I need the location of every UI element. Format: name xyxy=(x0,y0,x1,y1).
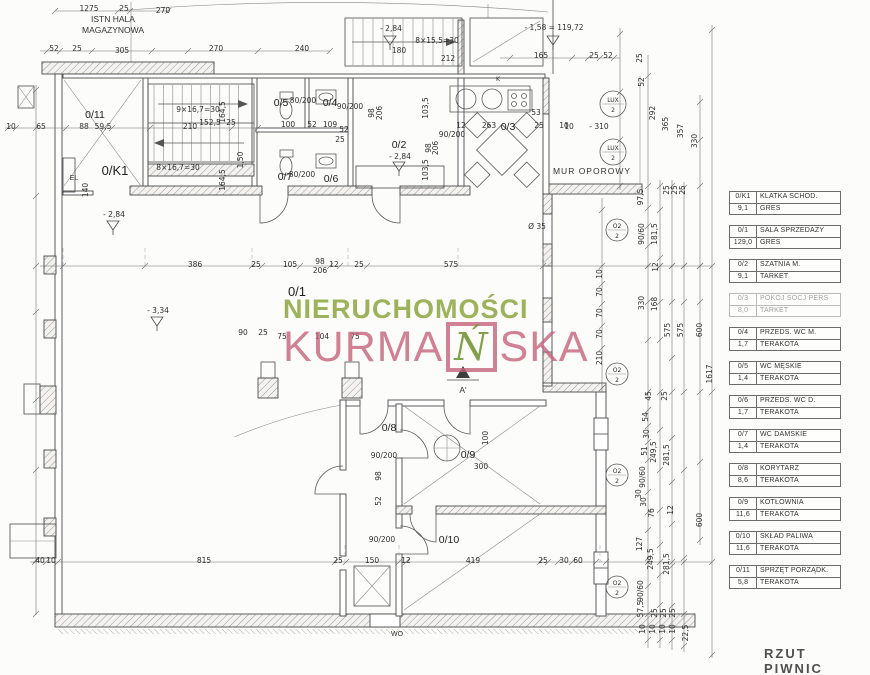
pilasters xyxy=(10,256,56,558)
dim-label: 12 xyxy=(401,556,411,565)
dim-label: 25 xyxy=(333,556,343,565)
dim-label: 88 xyxy=(79,122,89,131)
legend-code: 5,8 xyxy=(730,578,757,589)
legend-code: 0/4 xyxy=(730,328,757,339)
dim-label: 52 xyxy=(49,44,59,53)
section-label: A' xyxy=(459,385,467,395)
dim-label: 25 xyxy=(335,135,345,144)
dim-label: 25 xyxy=(119,4,129,13)
dim-label: 100 xyxy=(481,431,490,446)
legend-name: WC DAMSKIE xyxy=(757,430,807,441)
dim-label: 80/200 xyxy=(289,170,316,179)
dim-label: 10 xyxy=(564,122,574,131)
dim-label: 70 xyxy=(595,308,604,318)
legend-entry: 0/9KOTŁOWNIA11,6TERAKOTA xyxy=(729,497,841,521)
dim-label: 70 xyxy=(595,329,604,339)
dim-label: 10 xyxy=(658,624,667,634)
dim-label: 305 xyxy=(115,46,130,55)
dim-label: 600 xyxy=(695,513,704,528)
legend-code: 11,6 xyxy=(730,510,757,521)
dim-label: 25 xyxy=(251,260,261,269)
dim-label: - 2,84 xyxy=(380,24,402,33)
door-swing xyxy=(372,195,400,223)
dim-label: 815 xyxy=(197,556,212,565)
dim-label: 357 xyxy=(676,124,685,139)
legend-code: 0/7 xyxy=(730,430,757,441)
dim-label: 103,5 xyxy=(421,97,430,119)
legend-name: PRZEDS. WC M. xyxy=(757,328,816,339)
dim-label: 25 xyxy=(538,556,548,565)
dim-label: 330 xyxy=(637,296,646,311)
legend-entry: 0/11SPRZĘT PORZĄDK.5,8TERAKOTA xyxy=(729,565,841,589)
room-label: 0/9 xyxy=(461,449,476,461)
dim-label: 575 xyxy=(663,323,672,338)
dim-label: 80/200 xyxy=(290,96,317,105)
dim-label: 98 xyxy=(374,471,383,481)
dim-label: 98 xyxy=(315,257,325,266)
dim-label: 9×16,7=30 xyxy=(176,105,220,114)
dim-label: 1617 xyxy=(705,364,714,383)
dim-label: 53 xyxy=(531,108,541,117)
dim-label: 419 xyxy=(466,556,481,565)
dim-label: 240 xyxy=(295,44,310,53)
marker-bottom-text: 2 xyxy=(615,233,619,240)
legend-code: 0/2 xyxy=(730,260,757,271)
dim-label: 52 xyxy=(637,77,646,87)
dim-label: 75 xyxy=(277,332,287,341)
dim-label: 165 xyxy=(534,51,549,60)
dim-label: 249,5 xyxy=(646,548,655,570)
chimney-shaft xyxy=(354,566,390,606)
room-label: 0/8 xyxy=(382,422,397,434)
legend-code: 0/5 xyxy=(730,362,757,373)
marker-top-text: LUX xyxy=(607,97,619,104)
dim-label: 25 xyxy=(258,328,268,337)
dim-label: 25 xyxy=(635,53,644,63)
dim-label: 10 xyxy=(638,624,647,634)
dim-label: 12 xyxy=(651,262,660,272)
marker-bottom-text: 2 xyxy=(615,377,619,384)
boiler xyxy=(434,435,460,461)
dim-label: 281,5 xyxy=(662,444,671,466)
bearing-wall xyxy=(63,186,470,195)
dim-label: 45 xyxy=(644,391,653,401)
dim-label: 90/60 xyxy=(637,223,646,245)
legend-entry: 0/1SALA SPRZEDAŻY129,0GRES xyxy=(729,225,841,249)
dim-label: 104 xyxy=(315,332,330,341)
dim-label: 575 xyxy=(676,323,685,338)
legend-code: 9,1 xyxy=(730,204,757,215)
dim-label: 52 xyxy=(603,51,613,60)
dim-label: 25 xyxy=(668,608,677,618)
dim-label: 140 xyxy=(81,183,90,198)
legend-name: SKŁAD PALIWA xyxy=(757,532,813,543)
dim-label: 365 xyxy=(661,117,670,132)
dim-label: 212 xyxy=(441,54,456,63)
room-label: 0/10 xyxy=(439,534,460,546)
dim-label: 25 xyxy=(650,608,659,618)
legend-entry: 0/10SKŁAD PALIWA11,6TERAKOTA xyxy=(729,531,841,555)
dim-label: 90/200 xyxy=(337,102,364,111)
dim-label: 54 xyxy=(641,412,650,422)
door-swing xyxy=(400,430,428,458)
dim-label: 206 xyxy=(313,266,328,275)
dim-label: - 2,84 xyxy=(103,210,125,219)
marker-bottom-text: 2 xyxy=(615,478,619,485)
marker-bottom-text: 2 xyxy=(615,590,619,597)
dim-label: 263 xyxy=(482,121,497,130)
dim-label: 109 xyxy=(323,120,338,129)
dim-label: 181,5 xyxy=(650,223,659,245)
dim-label: 25 xyxy=(72,44,82,53)
dim-label: 70 xyxy=(595,287,604,297)
dim-label: 249,5 xyxy=(649,441,658,463)
legend-entry: 0/2SZATNIA M.9,1TARKET xyxy=(729,259,841,283)
legend-name: TERAKOTA xyxy=(757,578,799,589)
dim-label: 59,5 xyxy=(95,122,112,131)
legend-entry: 0/5WC MĘSKIE1,4TERAKOTA xyxy=(729,361,841,385)
legend-entry: 0/6PRZEDS. WC D.1,7TERAKOTA xyxy=(729,395,841,419)
legend-code: 0/K1 xyxy=(730,192,757,203)
coal-chute-label: WO xyxy=(391,631,404,638)
circle-marker: O22 xyxy=(606,576,628,598)
dim-label: 300 xyxy=(474,462,489,471)
legend-code: 8,0 xyxy=(730,306,757,317)
legend-name: GRES xyxy=(757,204,781,215)
legend-entry: 0/7WC DAMSKIE1,4TERAKOTA xyxy=(729,429,841,453)
legend-code: 0/6 xyxy=(730,396,757,407)
dim-label: - 3,34 xyxy=(147,306,169,315)
room-label: 0/11 xyxy=(85,109,105,121)
dim-label: 575 xyxy=(444,260,459,269)
dim-label: 164,5 xyxy=(218,169,227,191)
marker-bottom-text: 2 xyxy=(611,107,615,114)
dim-label: 90/200 xyxy=(371,451,398,460)
dim-label: 1275 xyxy=(79,4,98,13)
dim-label: 281,5 xyxy=(662,553,671,575)
dim-label: 25 xyxy=(589,51,599,60)
dim-label: 164,5 xyxy=(218,101,227,123)
dim-label: 150 xyxy=(365,556,380,565)
dim-label: 30 xyxy=(639,497,648,507)
legend-code: 1,4 xyxy=(730,374,757,385)
legend-name: TERAKOTA xyxy=(757,374,799,385)
dim-label: Ø 35 xyxy=(528,222,546,231)
circle-marker: LUX2 xyxy=(600,91,626,117)
legend-name: KORYTARZ xyxy=(757,464,799,475)
legend-name: KLATKA SCHOD. xyxy=(757,192,818,203)
dim-label: 90/200 xyxy=(369,535,396,544)
legend-entry: 0/K1KLATKA SCHOD.9,1GRES xyxy=(729,191,841,215)
dim-label: 10 xyxy=(46,556,56,565)
room-label: 0/3 xyxy=(501,121,516,133)
dim-label: 25 xyxy=(354,260,364,269)
dim-label: 10 xyxy=(648,624,657,634)
dim-label: 12 xyxy=(666,505,675,515)
legend-name: TERAKOTA xyxy=(757,340,799,351)
legend-code: 0/8 xyxy=(730,464,757,475)
legend-name: GRES xyxy=(757,238,781,249)
marker-top-text: LUX xyxy=(607,145,619,152)
scan-artifact-line xyxy=(128,2,548,12)
legend-code: 0/10 xyxy=(730,532,757,543)
hall-label-line1: ISTN HALA xyxy=(91,14,135,24)
door-swing xyxy=(315,466,343,494)
dim-label: 12 xyxy=(329,260,339,269)
dim-label: 90/60 xyxy=(636,580,645,602)
room-label: 0/2 xyxy=(392,139,407,151)
legend-name: TERAKOTA xyxy=(757,408,799,419)
dim-label: 206 xyxy=(431,141,440,156)
dim-label: 100 xyxy=(281,120,296,129)
room-label: 0/6 xyxy=(324,173,339,185)
dim-label: 8×15,5=30 xyxy=(415,36,459,45)
room-label: 0/1 xyxy=(288,284,306,299)
circle-marker: O22 xyxy=(606,363,628,385)
legend-code: 129,0 xyxy=(730,238,757,249)
legend-code: 1,4 xyxy=(730,442,757,453)
room-legend: 0/K1KLATKA SCHOD.9,1GRES0/1SALA SPRZEDAŻ… xyxy=(729,191,843,599)
dim-label: 127 xyxy=(635,537,644,552)
door-swing xyxy=(400,526,428,554)
legend-code: 0/3 xyxy=(730,294,757,305)
dim-label: 25 xyxy=(659,608,668,618)
dim-label: 60 xyxy=(573,556,583,565)
legend-name: SZATNIA M. xyxy=(757,260,800,271)
dim-label: 25 xyxy=(534,121,544,130)
circle-marker: O22 xyxy=(606,464,628,486)
elevator-label: EL xyxy=(70,175,79,182)
floor-plan-page: A' ISTN HALA MAGAZYNOWA MUR OPOROWY EL W… xyxy=(0,0,870,675)
dim-label: 30 xyxy=(642,429,651,439)
drawing-title: RZUT PIWNIC xyxy=(764,646,870,675)
door-swing xyxy=(260,195,288,223)
dim-label: 25 xyxy=(226,118,236,127)
legend-entry: 0/4PRZEDS. WC M.1,7TERAKOTA xyxy=(729,327,841,351)
dim-label: 330 xyxy=(690,134,699,149)
dim-label: 292 xyxy=(648,106,657,121)
legend-code: 8,6 xyxy=(730,476,757,487)
dim-label: 25 xyxy=(678,185,687,195)
legend-code: 0/9 xyxy=(730,498,757,509)
section-marker: A' xyxy=(447,366,479,395)
dim-label: 168 xyxy=(650,297,659,312)
dim-label: 30 xyxy=(559,556,569,565)
marker-top-text: O2 xyxy=(613,367,622,374)
dim-label: 10 xyxy=(668,624,677,634)
dim-label: 386 xyxy=(188,260,203,269)
legend-code: 1,7 xyxy=(730,408,757,419)
legend-name: SALA SPRZEDAŻY xyxy=(757,226,824,237)
dim-label: 105 xyxy=(283,260,298,269)
legend-code: 0/11 xyxy=(730,566,757,577)
door-swing xyxy=(410,514,436,542)
dim-label: 51 xyxy=(640,446,649,456)
dim-label: 22,5 xyxy=(681,624,690,641)
dim-label: 1,50 xyxy=(236,151,245,168)
dim-label: 65 xyxy=(36,122,46,131)
dim-label: 103,5 xyxy=(421,159,430,181)
dim-label: - 1,58 = 119,72 xyxy=(524,23,583,32)
dim-label: 90/200 xyxy=(439,130,466,139)
dim-label: 52 xyxy=(339,125,349,134)
legend-name: SPRZĘT PORZĄDK. xyxy=(757,566,828,577)
legend-name: PRZEDS. WC D. xyxy=(757,396,816,407)
dim-label: 210 xyxy=(183,122,198,131)
dim-label: 600 xyxy=(695,323,704,338)
dim-label: 97,5 xyxy=(636,188,645,205)
dim-label: 75 xyxy=(350,332,360,341)
legend-code: 0/1 xyxy=(730,226,757,237)
legend-code: 9,1 xyxy=(730,272,757,283)
dim-label: - 310 xyxy=(589,122,609,131)
room-label: 0/5 xyxy=(274,97,289,109)
dim-label: - 2,84 xyxy=(389,152,411,161)
legend-name: POKÓJ SOCJ PERS xyxy=(757,294,828,305)
marker-top-text: O2 xyxy=(613,223,622,230)
dim-label: 8×16,7=30 xyxy=(156,163,200,172)
boiler-block-walls xyxy=(340,400,606,616)
circle-marker: LUX2 xyxy=(600,139,626,165)
dim-label: 12 xyxy=(456,121,466,130)
dim-label: 10 xyxy=(595,269,604,279)
legend-name: KOTŁOWNIA xyxy=(757,498,804,509)
marker-bottom-text: 2 xyxy=(611,155,615,162)
legend-name: TERAKOTA xyxy=(757,510,799,521)
marker-top-text: O2 xyxy=(613,468,622,475)
retaining-wall-label: MUR OPOROWY xyxy=(553,166,631,176)
dim-label: 52 xyxy=(307,120,317,129)
legend-code: 11,6 xyxy=(730,544,757,555)
legend-name: TARKET xyxy=(757,306,788,317)
dim-label: 90 xyxy=(238,328,248,337)
room-label: 0/K1 xyxy=(102,163,129,178)
dim-label: 206 xyxy=(375,106,384,121)
dim-label: 90/60 xyxy=(638,466,647,488)
dim-label: 25 xyxy=(660,391,669,401)
legend-code: 1,7 xyxy=(730,340,757,351)
room-label: 0/4 xyxy=(323,97,338,109)
legend-name: TERAKOTA xyxy=(757,476,799,487)
door-swings xyxy=(260,195,470,554)
dim-label: 180 xyxy=(392,46,407,55)
legend-name: TARKET xyxy=(757,272,788,283)
legend-name: TERAKOTA xyxy=(757,544,799,555)
marker-top-text: O2 xyxy=(613,580,622,587)
circle-marker: O22 xyxy=(606,219,628,241)
dim-label: 270 xyxy=(209,44,224,53)
hall-label-line2: MAGAZYNOWA xyxy=(82,25,144,35)
dim-label: 210 xyxy=(595,351,604,366)
legend-entry: 0/3POKÓJ SOCJ PERS8,0TARKET xyxy=(729,293,841,317)
dim-label: 57,5 xyxy=(636,600,645,617)
dim-label: 52 xyxy=(374,496,383,506)
legend-name: TERAKOTA xyxy=(757,442,799,453)
dim-label: 76 xyxy=(647,508,656,518)
legend-name: WC MĘSKIE xyxy=(757,362,802,373)
dim-label: 40 xyxy=(35,556,45,565)
dim-label: 10 xyxy=(6,122,16,131)
door-swing xyxy=(444,406,470,434)
legend-entry: 0/8KORYTARZ8,6TERAKOTA xyxy=(729,463,841,487)
dim-label: 270 xyxy=(156,6,171,15)
